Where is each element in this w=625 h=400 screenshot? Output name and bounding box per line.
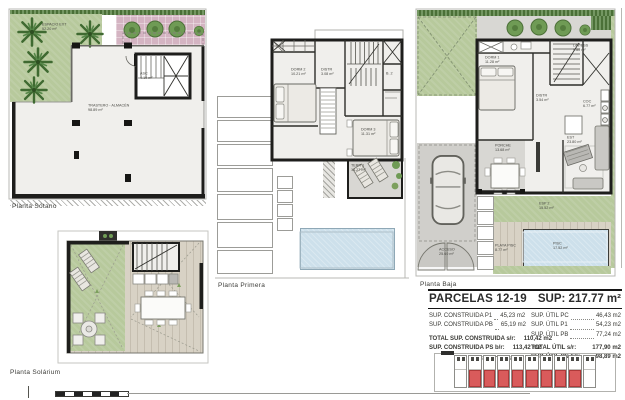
room-label-bath: B. 2 bbox=[386, 72, 393, 76]
room-label-terr: TERR 114.27 m² bbox=[351, 164, 366, 173]
stairwell bbox=[126, 54, 190, 98]
room-label-dorm2: DORM 210.21 m² bbox=[291, 68, 306, 77]
stairs bbox=[347, 42, 381, 86]
stairs bbox=[133, 243, 179, 271]
bed-dorm1 bbox=[479, 42, 531, 111]
room-label-porche: PORCHE13.68 m² bbox=[495, 144, 511, 153]
ruler-mark bbox=[28, 386, 29, 398]
plan-baja: LAV/ESS9.80 m² DORM 111.28 m² DISTR3.54 … bbox=[415, 8, 617, 278]
parcelas-title: PARCELAS 12-19 bbox=[429, 293, 527, 305]
room-label-distr: DISTR3.54 m² bbox=[536, 94, 549, 103]
key-plan-unit bbox=[525, 355, 538, 388]
room-label-coc: COC6.77 m² bbox=[583, 100, 596, 109]
caption-primera: Planta Primera bbox=[218, 282, 265, 289]
scale-bar-line bbox=[127, 393, 530, 394]
key-plan-unit bbox=[568, 355, 581, 388]
room-label-trastero: TRASTERO - ALMACÉN98.89 m² bbox=[88, 104, 129, 113]
room-label-dorm3: DORM 311.31 m² bbox=[361, 128, 375, 137]
caption-sotano: Planta Sótano bbox=[12, 203, 57, 210]
spec-row: SUP. ÚTIL PC46,43 m2 bbox=[531, 312, 621, 321]
caption-baja: Planta Baja bbox=[420, 281, 457, 288]
architectural-sheet: ESPACIO EXT52.20 m² TRASTERO - ALMACÉN98… bbox=[0, 0, 625, 400]
bed-dorm3 bbox=[347, 120, 399, 156]
car bbox=[430, 156, 466, 224]
spec-row: SUP. ÚTIL P154,23 m2 bbox=[531, 321, 621, 330]
solarium-linework bbox=[57, 227, 213, 369]
plan-solarium bbox=[57, 227, 213, 369]
room-label-dorm1: DORM 111.28 m² bbox=[485, 56, 499, 65]
room-label-asc: ASC4.10 m² bbox=[140, 72, 153, 81]
dining-table bbox=[135, 291, 191, 325]
street-trees bbox=[507, 19, 590, 36]
spec-row: SUP. CONSTRUIDA P145,23 m2 bbox=[429, 312, 519, 321]
spec-row: SUP. CONSTRUIDA PB65,19 m2 bbox=[429, 321, 519, 330]
spec-row: SUP. ÚTIL PB77,24 m2 bbox=[531, 331, 621, 340]
scale-bar bbox=[55, 391, 129, 397]
sup-total: SUP: 217.77 m² bbox=[538, 293, 621, 305]
dining-table bbox=[485, 158, 525, 194]
room-label-pisc: PISC17.52 m² bbox=[553, 242, 568, 251]
primera-linework bbox=[215, 28, 411, 282]
street-line bbox=[621, 8, 622, 268]
summary-header: PARCELAS 12-19 SUP: 217.77 m² bbox=[428, 289, 622, 309]
room-label-espacio-ext: ESPACIO EXT52.20 m² bbox=[42, 23, 67, 32]
room-label-esp2: ESP 215.52 m² bbox=[539, 202, 554, 211]
key-plan-unit bbox=[497, 355, 510, 388]
spec-row: TOTAL SUP. CONSTRUIDA s/r:110,42 m2 bbox=[429, 335, 519, 344]
room-label-playa: PLAYA PISC8.77 m² bbox=[495, 244, 516, 253]
key-plan-unit bbox=[454, 355, 467, 388]
lounge-set bbox=[73, 313, 105, 345]
key-plan-unit bbox=[583, 355, 596, 388]
key-plan-mark bbox=[441, 351, 454, 355]
plan-sotano: ESPACIO EXT52.20 m² TRASTERO - ALMACÉN98… bbox=[8, 8, 208, 202]
room-label-distr: DISTR3.08 m² bbox=[321, 68, 334, 77]
kitchenette bbox=[133, 274, 178, 284]
key-plan bbox=[428, 351, 624, 395]
key-plan-units bbox=[454, 355, 596, 388]
caption-solarium: Planta Solárium bbox=[10, 369, 60, 376]
key-plan-unit bbox=[483, 355, 496, 388]
key-plan-unit bbox=[511, 355, 524, 388]
key-plan-unit bbox=[540, 355, 553, 388]
bed-dorm2 bbox=[274, 84, 316, 122]
terrace-trees bbox=[124, 21, 204, 38]
wardrobe bbox=[320, 88, 336, 134]
room-label-acceso: ACCESO25.60 m² bbox=[439, 248, 455, 257]
plan-primera: DORM 210.21 m² DISTR3.08 m² B. 2 DORM 31… bbox=[215, 28, 411, 282]
key-plan-unit bbox=[554, 355, 567, 388]
room-label-est: EST23.80 m² bbox=[567, 136, 582, 145]
loungers bbox=[70, 249, 100, 291]
key-plan-unit bbox=[468, 355, 481, 388]
room-label-lav: LAV/ESS9.80 m² bbox=[573, 44, 588, 53]
